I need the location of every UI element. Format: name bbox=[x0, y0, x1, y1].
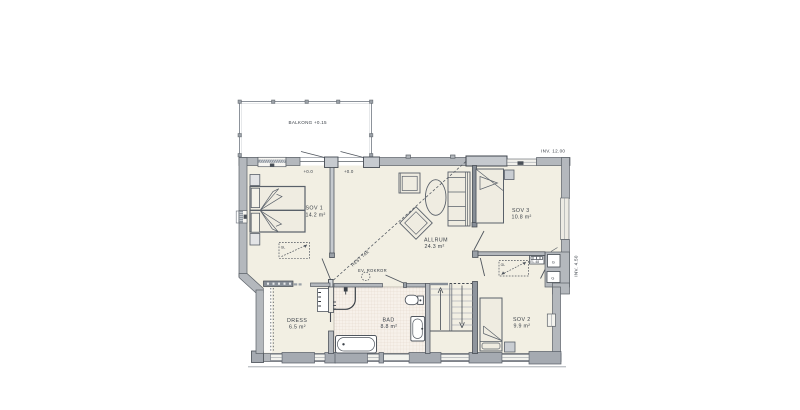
svg-text:INV. 12.00: INV. 12.00 bbox=[541, 149, 565, 154]
svg-text:DRESS: DRESS bbox=[287, 318, 307, 324]
svg-text:+0.0: +0.0 bbox=[344, 169, 354, 174]
svg-text:10.8 m²: 10.8 m² bbox=[512, 215, 532, 221]
svg-text:EL.48: EL.48 bbox=[530, 260, 539, 264]
svg-text:SOV 2: SOV 2 bbox=[513, 317, 531, 323]
svg-text:+0.0: +0.0 bbox=[304, 169, 314, 174]
svg-text:6.5 m²: 6.5 m² bbox=[289, 325, 306, 331]
svg-text:GL: GL bbox=[281, 246, 286, 250]
svg-text:G: G bbox=[551, 276, 554, 281]
svg-text:14.2 m²: 14.2 m² bbox=[306, 213, 326, 219]
svg-text:SOV 3: SOV 3 bbox=[512, 208, 530, 214]
svg-text:9.9 m²: 9.9 m² bbox=[514, 324, 531, 330]
svg-text:8.8 m²: 8.8 m² bbox=[381, 324, 398, 330]
svg-text:G: G bbox=[552, 259, 555, 264]
svg-text:ALLRUM: ALLRUM bbox=[424, 238, 448, 244]
svg-text:BAD: BAD bbox=[383, 318, 395, 324]
svg-text:GL: GL bbox=[501, 263, 506, 267]
svg-text:24.3 m²: 24.3 m² bbox=[425, 244, 445, 250]
svg-text:BALKONG +0.15: BALKONG +0.15 bbox=[289, 120, 328, 125]
svg-text:EV. ROKROR: EV. ROKROR bbox=[358, 268, 387, 273]
svg-text:INV. 4.50: INV. 4.50 bbox=[574, 255, 579, 277]
svg-text:SOV 1: SOV 1 bbox=[306, 206, 324, 212]
